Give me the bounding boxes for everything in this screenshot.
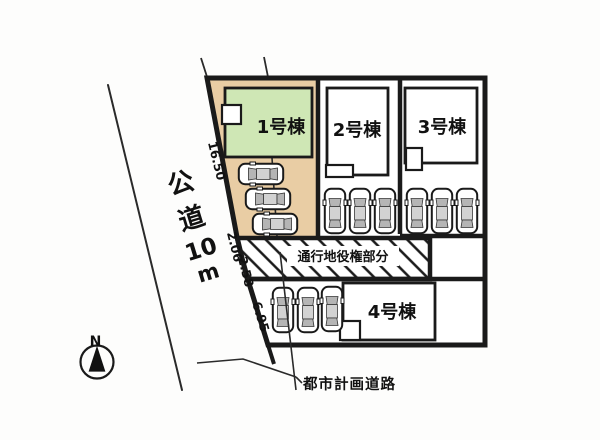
car-icon	[296, 288, 320, 332]
building-3-label: 3号棟	[418, 116, 468, 138]
building-1-notch	[222, 105, 241, 124]
building-2-label: 2号棟	[333, 119, 383, 141]
car-icon	[271, 288, 295, 332]
car-icon	[455, 189, 479, 233]
site-plan-canvas: 通行地役権部分 1号棟 2号棟 3号棟 4号棟 16.50 2.06 2.58 …	[0, 0, 600, 440]
site-plan-svg: 通行地役権部分 1号棟 2号棟 3号棟 4号棟 16.50 2.06 2.58 …	[0, 0, 600, 440]
easement-label: 通行地役権部分	[297, 249, 388, 265]
car-icon	[246, 187, 290, 211]
building-2-notch	[326, 165, 353, 177]
car-icon	[323, 189, 347, 233]
compass-north-label: N	[90, 334, 102, 350]
car-icon	[239, 162, 283, 186]
car-icon	[253, 212, 297, 236]
car-icon	[348, 189, 372, 233]
car-icon	[430, 189, 454, 233]
car-icon	[405, 189, 429, 233]
car-icon	[320, 287, 344, 331]
building-1-label: 1号棟	[257, 116, 307, 138]
building-4-label: 4号棟	[368, 301, 418, 323]
building-3-notch	[406, 148, 422, 170]
car-icon	[373, 189, 397, 233]
planning-road-label: 都市計画道路	[302, 375, 396, 393]
